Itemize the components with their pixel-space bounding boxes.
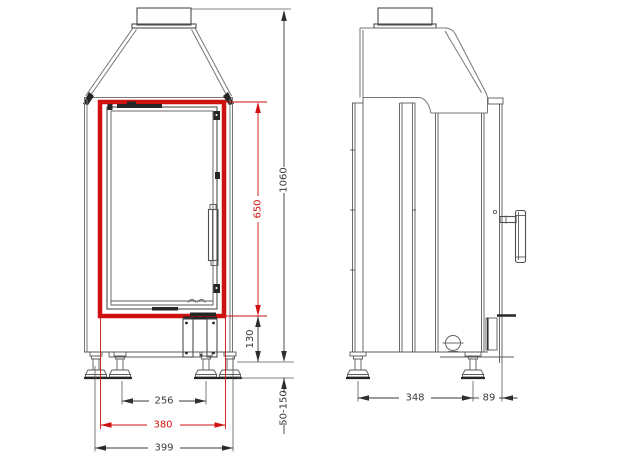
dimensions-red: 650 380 xyxy=(101,102,268,431)
dim-door-height: 650 xyxy=(253,199,264,218)
adjustable-foot xyxy=(218,352,242,378)
adjustable-foot xyxy=(194,352,218,378)
flue-collar-front xyxy=(132,8,196,28)
rear-latch-bracket xyxy=(486,316,516,351)
side-view xyxy=(346,8,526,378)
pedestal-posts xyxy=(183,317,217,358)
adjustable-foot xyxy=(108,352,132,378)
adjustable-foot xyxy=(346,352,370,378)
dim-feet-depth-spacing: 348 xyxy=(405,393,424,404)
drawing-svg: 1060 130 50-150 256 399 348 89 xyxy=(0,0,624,460)
flue-collar-side xyxy=(374,8,436,28)
body-side xyxy=(350,98,514,364)
dim-base-height: 130 xyxy=(245,329,256,348)
hood-side xyxy=(360,28,503,113)
dim-inner-feet-spacing: 256 xyxy=(154,396,173,407)
dim-rear-overhang: 89 xyxy=(483,393,496,404)
rear-top-tab xyxy=(488,98,503,104)
dim-frame-width: 380 xyxy=(153,420,172,431)
dim-overall-height: 1060 xyxy=(279,167,290,192)
adjustable-feet-front xyxy=(84,352,242,378)
rear-panel-dot xyxy=(493,210,496,213)
dim-foot-range: 50-150 xyxy=(279,390,290,425)
door-front xyxy=(107,102,220,317)
dimensions-black: 1060 130 50-150 256 399 348 89 xyxy=(95,9,518,454)
front-view xyxy=(83,8,242,378)
door-handle-side xyxy=(500,211,526,263)
adjustable-foot xyxy=(461,352,485,378)
technical-drawing-fireplace: 1060 130 50-150 256 399 348 89 xyxy=(0,0,624,460)
door-frame-highlight xyxy=(100,102,224,316)
latch-pin xyxy=(215,172,220,179)
air-control-knob xyxy=(443,336,464,352)
adjustable-feet-side xyxy=(346,352,485,378)
dim-overall-width: 399 xyxy=(154,443,173,454)
adjustable-foot xyxy=(84,352,108,378)
hood-front xyxy=(83,28,234,105)
